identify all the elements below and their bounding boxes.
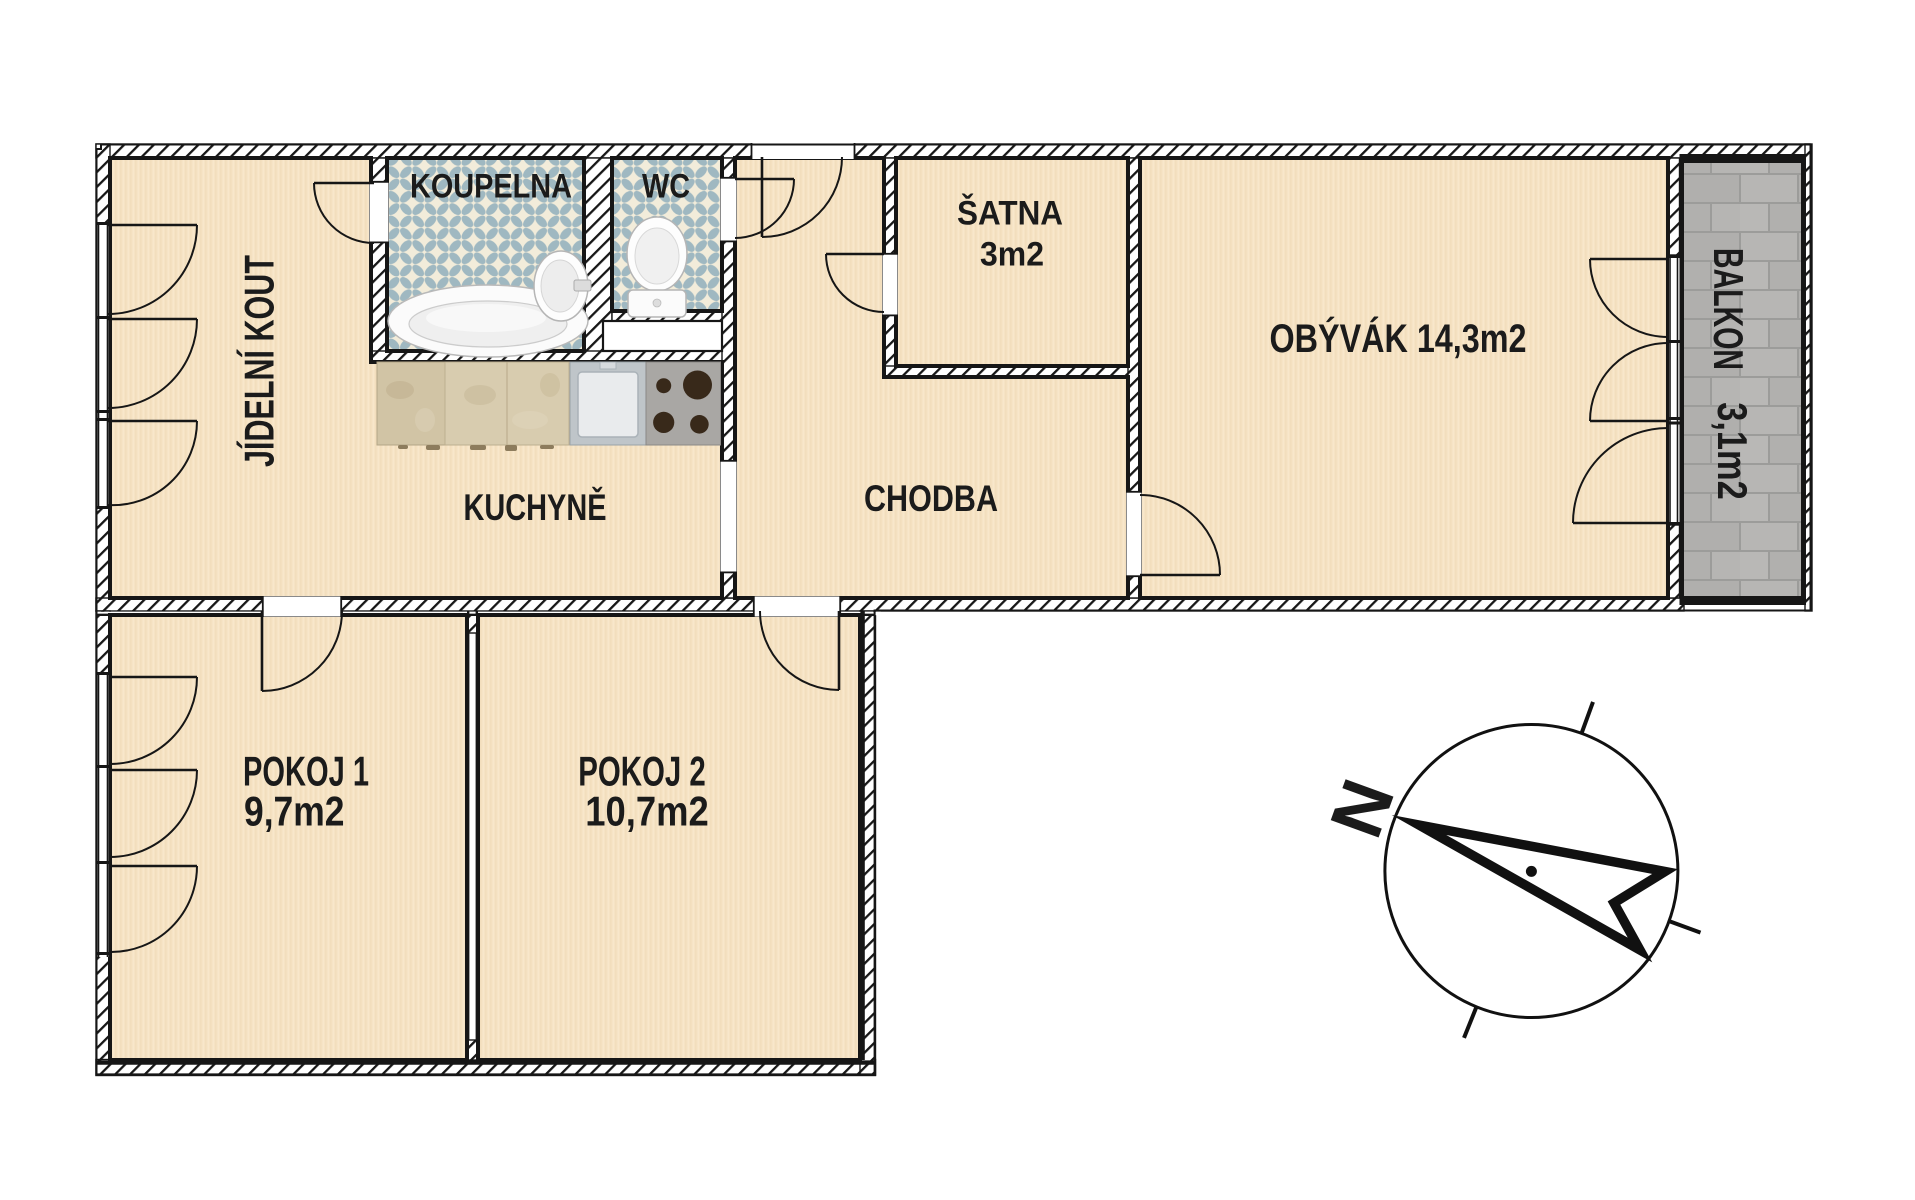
svg-text:KUCHYNĚ: KUCHYNĚ (464, 486, 607, 528)
svg-text:JÍDELNÍ KOUT: JÍDELNÍ KOUT (236, 255, 283, 467)
svg-text:CHODBA: CHODBA (864, 477, 998, 519)
svg-text:KOUPELNA: KOUPELNA (410, 168, 572, 206)
svg-text:3m2: 3m2 (980, 236, 1044, 274)
svg-text:9,7m2: 9,7m2 (244, 788, 345, 835)
svg-text:ŠATNA: ŠATNA (957, 193, 1063, 233)
svg-text:BALKON: BALKON (1705, 248, 1752, 370)
svg-text:10,7m2: 10,7m2 (585, 788, 709, 835)
svg-text:3,1m2: 3,1m2 (1709, 402, 1756, 500)
svg-text:WC: WC (642, 168, 690, 206)
svg-text:OBÝVÁK 14,3m2: OBÝVÁK 14,3m2 (1270, 315, 1527, 361)
